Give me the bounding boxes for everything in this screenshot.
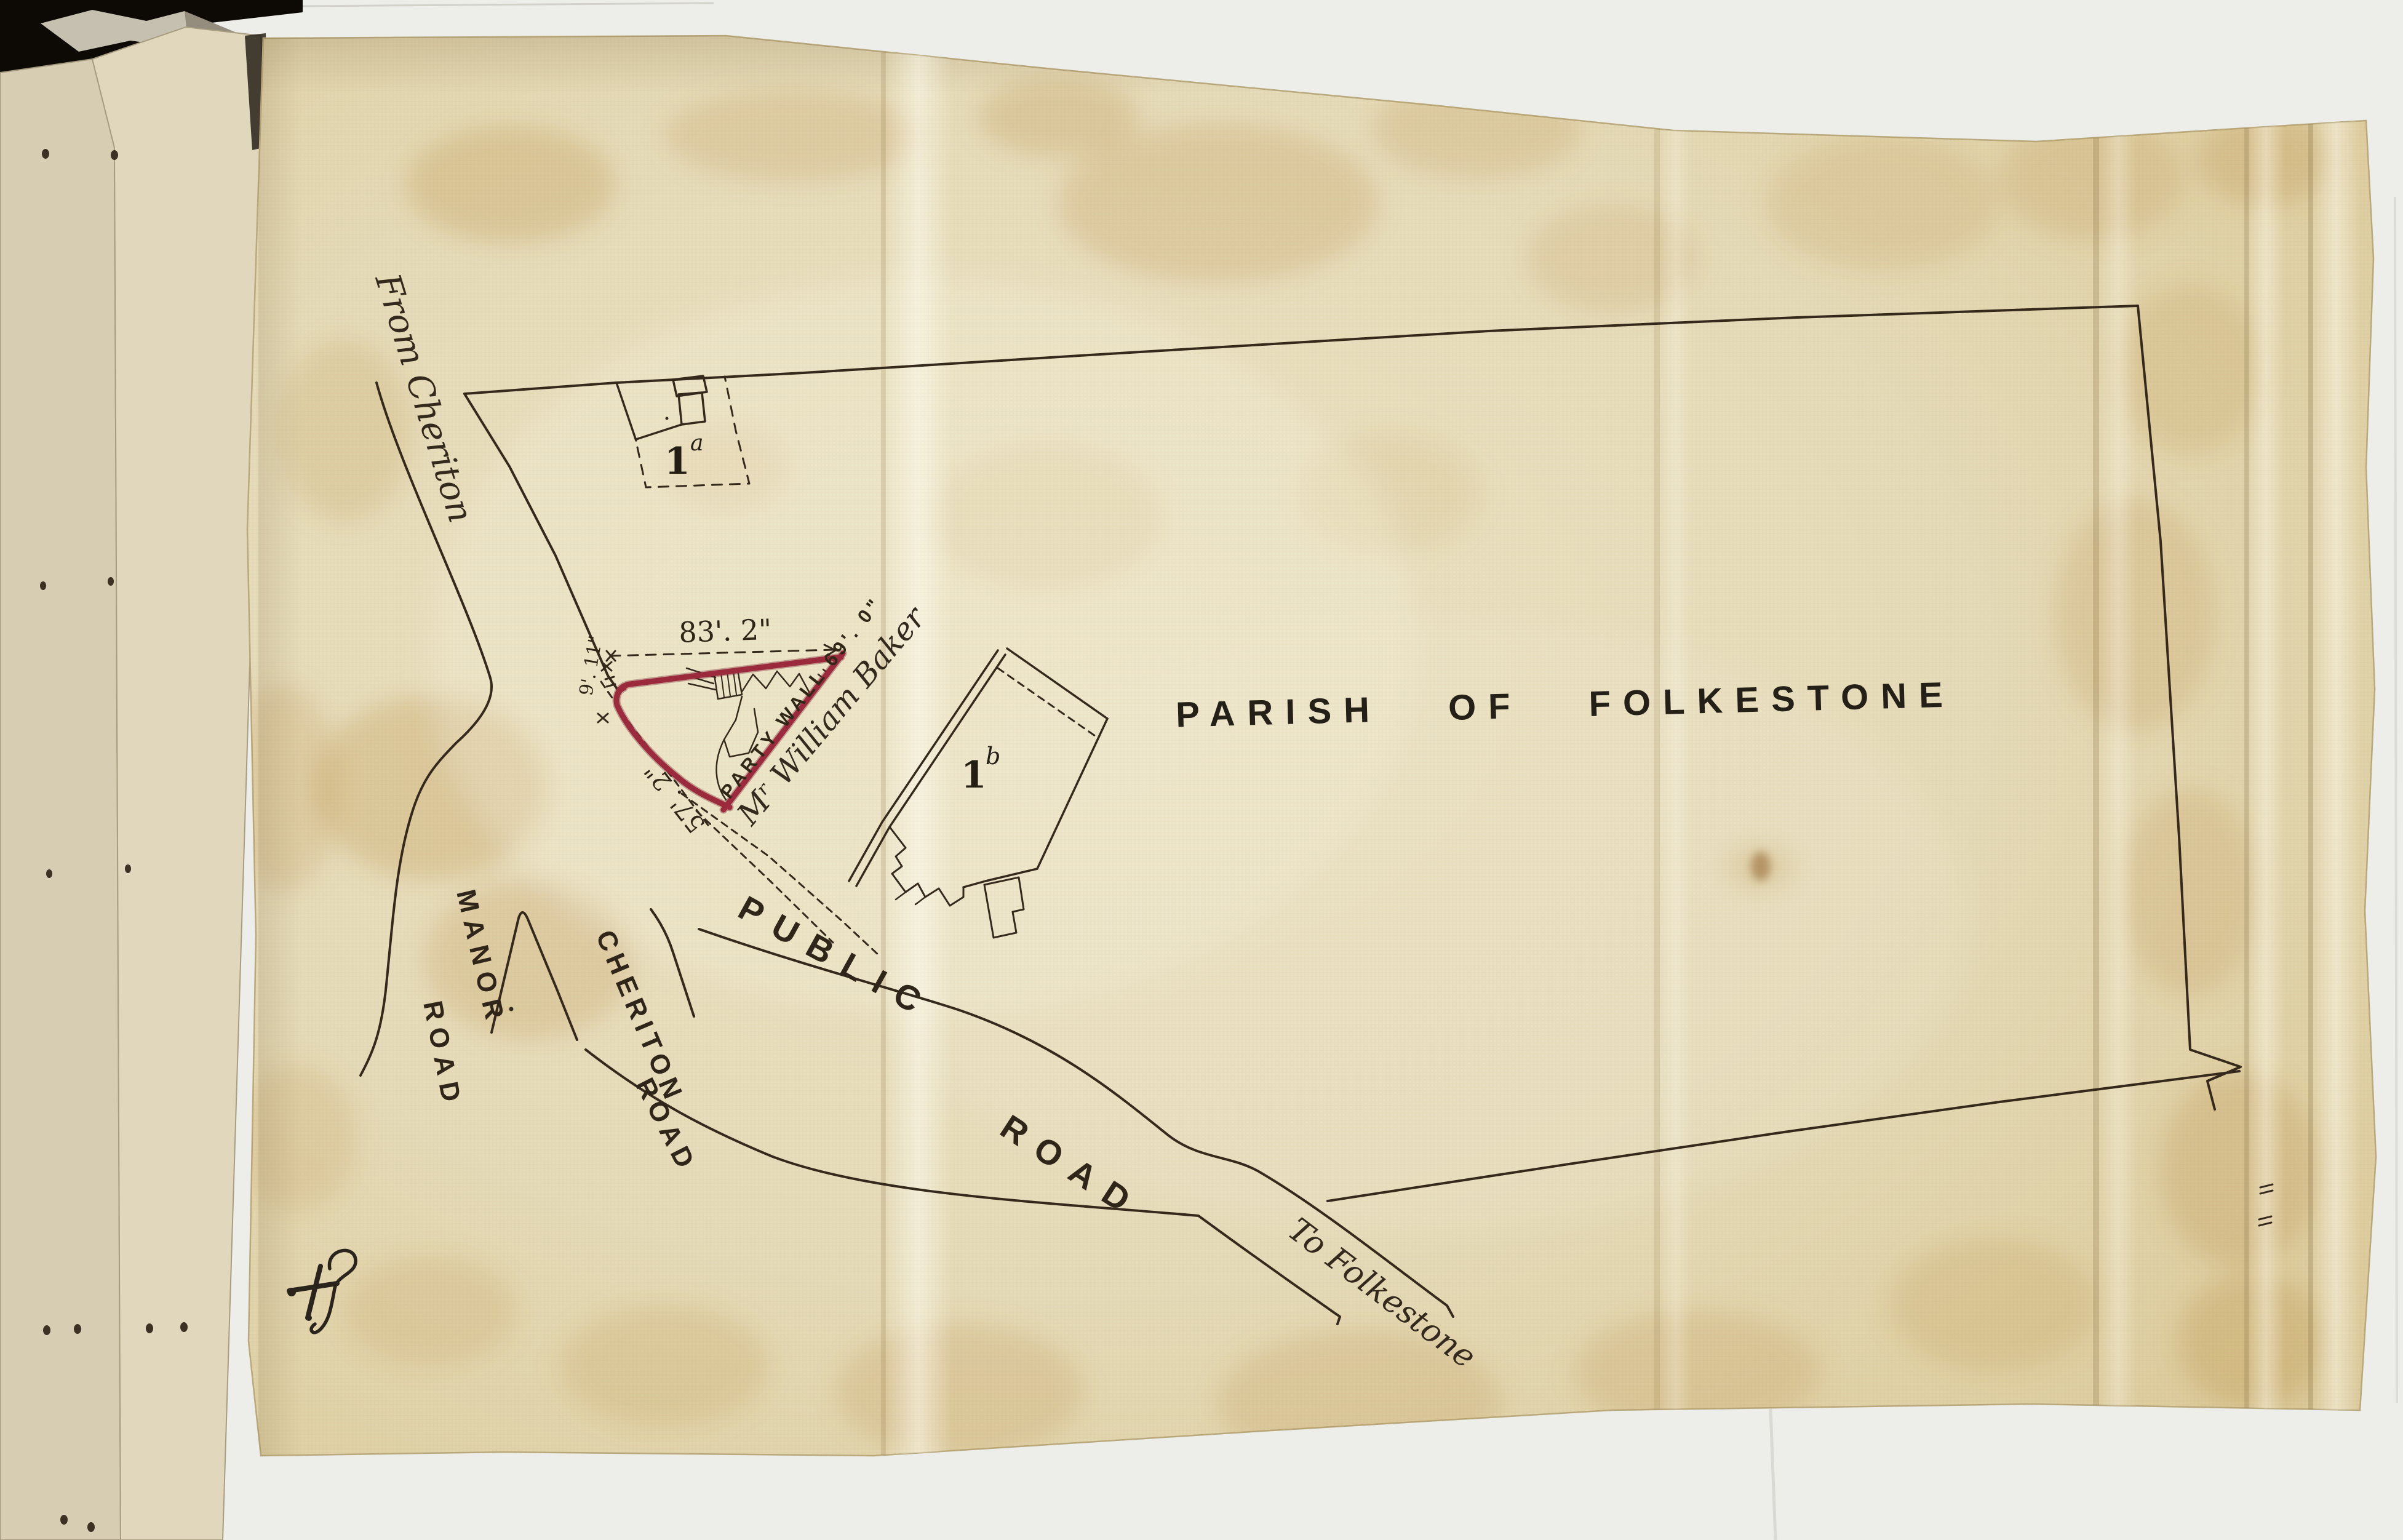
book-pages <box>0 27 268 1540</box>
parcel-1a-number: 1 <box>664 440 690 483</box>
dimension-top-label: 83'. 2" <box>678 613 772 649</box>
ink-dot <box>509 1007 514 1011</box>
parcel-1a-suffix: a <box>690 431 703 456</box>
scanned-map-page: PARISH OF FOLKESTONE From Cheriton To Fo… <box>0 0 2403 1540</box>
parcel-1b-suffix: b <box>986 743 1000 770</box>
book-page <box>0 59 121 1540</box>
parcel-1b-number: 1 <box>961 754 987 797</box>
